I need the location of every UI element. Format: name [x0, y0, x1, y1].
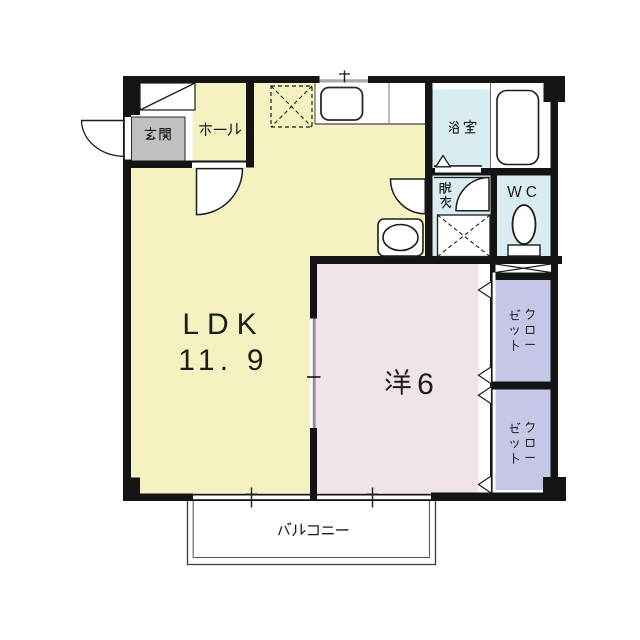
svg-text:LDK: LDK	[182, 308, 264, 341]
svg-text:6: 6	[417, 368, 434, 401]
svg-text:WC: WC	[507, 184, 541, 201]
svg-text:11. 9: 11. 9	[178, 344, 269, 377]
